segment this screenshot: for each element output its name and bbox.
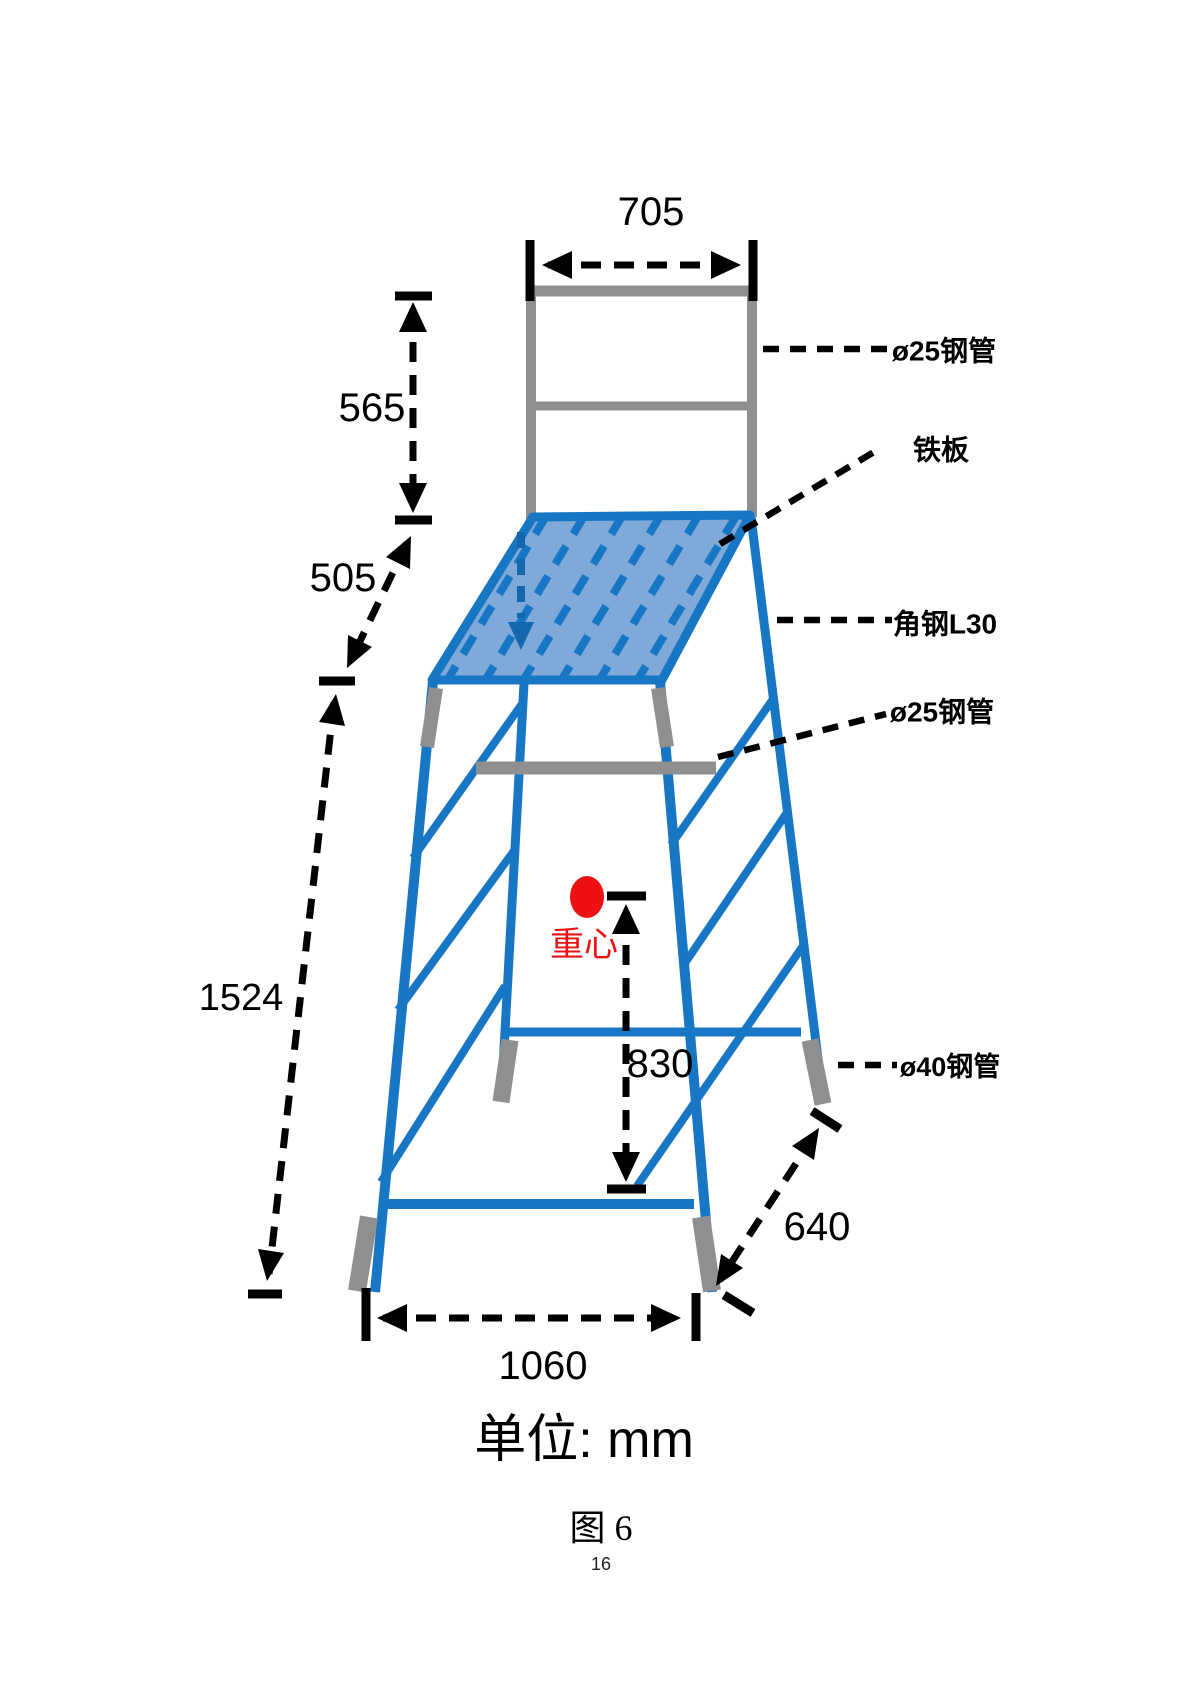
document-page: 705 565 505 1524 (0, 0, 1199, 1696)
cross-bars (380, 768, 801, 1204)
cog-dot (570, 876, 604, 918)
dimension-base-width: 1060 (366, 1288, 696, 1388)
label-pipe25-top: ø25钢管 (892, 335, 996, 367)
label-angle-steel: 角钢L30 (893, 608, 997, 640)
center-of-gravity-marker: 重心 (550, 876, 618, 964)
callout-angle-steel: 角钢L30 (777, 608, 997, 640)
dimension-overall-height: 1524 (199, 694, 345, 1294)
dim-565-label: 565 (339, 386, 406, 430)
dim-505-label: 505 (310, 556, 377, 600)
callout-pipe25-top: ø25钢管 (763, 335, 996, 367)
dim-1524-label: 1524 (199, 977, 284, 1019)
dimension-base-depth: 640 (716, 1111, 850, 1313)
front-right-foot (701, 1217, 712, 1291)
back-left-foot (501, 1040, 510, 1102)
right-connector-sleeve (658, 688, 667, 747)
dim-705-label: 705 (618, 190, 685, 234)
label-plate: 铁板 (913, 435, 969, 466)
unit-label: 单位: mm (474, 1411, 694, 1469)
right-brace-2 (683, 811, 788, 966)
dim-1060-label: 1060 (499, 1344, 588, 1388)
left-connector-sleeve (427, 688, 436, 747)
dimension-platform-drop: 505 (310, 536, 411, 681)
back-right-leg (751, 517, 820, 1075)
label-pipe25-mid: ø25钢管 (890, 696, 994, 728)
dimension-top-width: 705 (530, 190, 753, 301)
page-number: 16 (591, 1554, 611, 1574)
callout-pipe25-mid: ø25钢管 (718, 696, 994, 758)
label-pipe40: ø40钢管 (900, 1052, 1001, 1082)
figure-caption: 图 6 (569, 1508, 632, 1548)
front-left-foot (357, 1217, 369, 1291)
callout-pipe40: ø40钢管 (838, 1052, 1000, 1082)
dim-830-label: 830 (627, 1042, 694, 1086)
backrest-frame (526, 286, 757, 519)
cog-label: 重心 (550, 926, 618, 964)
dimension-backrest-height: 565 (339, 296, 432, 520)
plate-surface (432, 515, 750, 680)
umpire-chair-diagram: 705 565 505 1524 (0, 0, 1199, 1696)
callout-plate: 铁板 (720, 435, 969, 545)
dim-640-label: 640 (784, 1205, 851, 1249)
